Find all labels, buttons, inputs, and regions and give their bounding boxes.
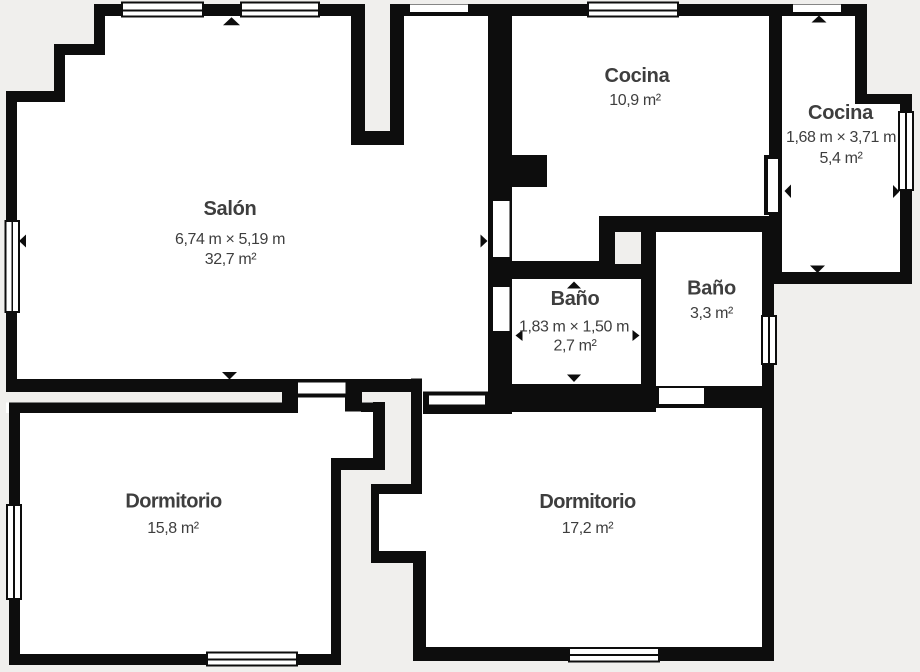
svg-text:2,7 m²: 2,7 m² (554, 338, 598, 355)
svg-text:Dormitorio: Dormitorio (539, 491, 636, 513)
svg-text:Baño: Baño (551, 288, 600, 310)
svg-text:17,2 m²: 17,2 m² (562, 520, 615, 537)
svg-text:15,8 m²: 15,8 m² (147, 520, 200, 537)
svg-text:5,4 m²: 5,4 m² (820, 150, 864, 167)
svg-text:1,83 m × 1,50 m: 1,83 m × 1,50 m (519, 319, 629, 336)
svg-text:32,7 m²: 32,7 m² (205, 251, 258, 268)
svg-text:Dormitorio: Dormitorio (125, 491, 222, 513)
svg-text:1,68 m × 3,71 m: 1,68 m × 3,71 m (786, 129, 896, 146)
svg-text:Salón: Salón (204, 198, 257, 220)
svg-text:Baño: Baño (687, 278, 736, 300)
svg-text:Cocina: Cocina (605, 65, 671, 87)
svg-text:Cocina: Cocina (808, 102, 874, 124)
svg-text:6,74 m × 5,19 m: 6,74 m × 5,19 m (175, 231, 285, 248)
svg-text:10,9 m²: 10,9 m² (609, 92, 662, 109)
svg-text:3,3 m²: 3,3 m² (690, 305, 734, 322)
